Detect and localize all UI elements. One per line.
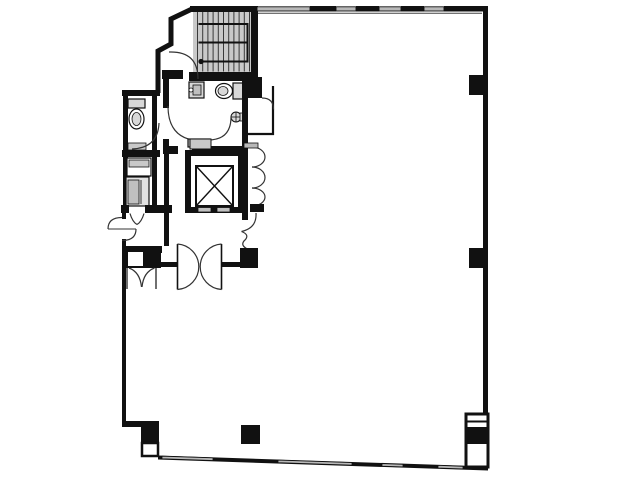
double-closet-door-left xyxy=(129,268,142,287)
sink-area-door-arc xyxy=(208,117,231,140)
wing-divider-wall xyxy=(122,150,160,157)
closet-door-arc xyxy=(262,98,274,110)
column-core-sw xyxy=(143,248,161,268)
service-door-arc-right xyxy=(137,214,144,225)
elevator-door-left xyxy=(198,208,211,213)
corner-notch-box xyxy=(142,443,158,456)
service-door-arc-left xyxy=(130,214,137,225)
folding-door-1 xyxy=(252,147,265,167)
column-interior xyxy=(241,425,260,444)
entry-door-right-arc xyxy=(200,244,221,290)
wc-bowl-inner xyxy=(132,113,141,126)
south-window-4 xyxy=(438,465,463,469)
column-southeast xyxy=(468,427,487,444)
south-wall-white-box xyxy=(127,251,144,267)
duct-box-a-band xyxy=(129,160,149,167)
stair-top-wall xyxy=(190,6,258,12)
floor-plan-svg xyxy=(0,0,640,480)
north-window-4 xyxy=(424,7,444,11)
left-wall-lower xyxy=(122,239,126,425)
folding-door-2 xyxy=(252,167,265,188)
duct-box-b-inner xyxy=(128,180,139,204)
column-southwest xyxy=(141,421,159,444)
north-wall-seg-3 xyxy=(401,6,424,12)
urinal-inner xyxy=(193,85,201,95)
south-window-3 xyxy=(382,464,403,467)
midwall-left xyxy=(163,146,178,154)
column-core-se xyxy=(240,248,258,268)
entry-wall-right xyxy=(221,262,241,267)
left-wall-upper xyxy=(122,210,126,219)
toilet-bowl-inner xyxy=(218,87,228,96)
toilet-stall-door-arc xyxy=(168,106,203,141)
north-window-1 xyxy=(257,7,310,11)
opening-break-squiggle xyxy=(242,232,247,249)
north-wall-seg-4 xyxy=(444,6,488,12)
elevator-shaft-inner xyxy=(191,156,238,207)
core-right-wall xyxy=(242,95,248,220)
floor-plan-image xyxy=(0,0,640,480)
north-window-3 xyxy=(379,7,401,11)
stair-start-marker xyxy=(198,59,203,64)
window-sill-seg xyxy=(244,143,258,148)
balcony-door-arc-lower xyxy=(122,229,136,241)
core-left-wall-upper xyxy=(163,78,169,108)
entry-wall-left xyxy=(161,262,177,267)
north-window-2 xyxy=(336,7,356,11)
toilet-tank xyxy=(233,83,243,99)
elevator-shelf xyxy=(190,139,211,149)
elevator-door-right xyxy=(217,208,230,213)
entry-door-left-arc xyxy=(178,244,199,290)
core-left-wall-lower xyxy=(164,154,169,246)
column-east-mid xyxy=(469,248,486,268)
stair-bottom-wall-left xyxy=(162,70,183,79)
bottom-step-wall xyxy=(122,421,143,427)
stair-right-wall xyxy=(251,6,258,79)
urinal-knob xyxy=(189,88,193,92)
folding-door-stub-wall xyxy=(250,204,264,212)
wc-tank xyxy=(128,99,145,108)
column-east-upper xyxy=(469,75,486,95)
column-core-ne xyxy=(242,77,262,98)
north-wall-seg-1 xyxy=(310,6,336,12)
folding-door-3 xyxy=(252,188,265,206)
balcony-door-arc-upper xyxy=(108,218,122,230)
double-closet-door-right xyxy=(142,268,155,287)
north-wall-seg-2 xyxy=(356,6,379,12)
